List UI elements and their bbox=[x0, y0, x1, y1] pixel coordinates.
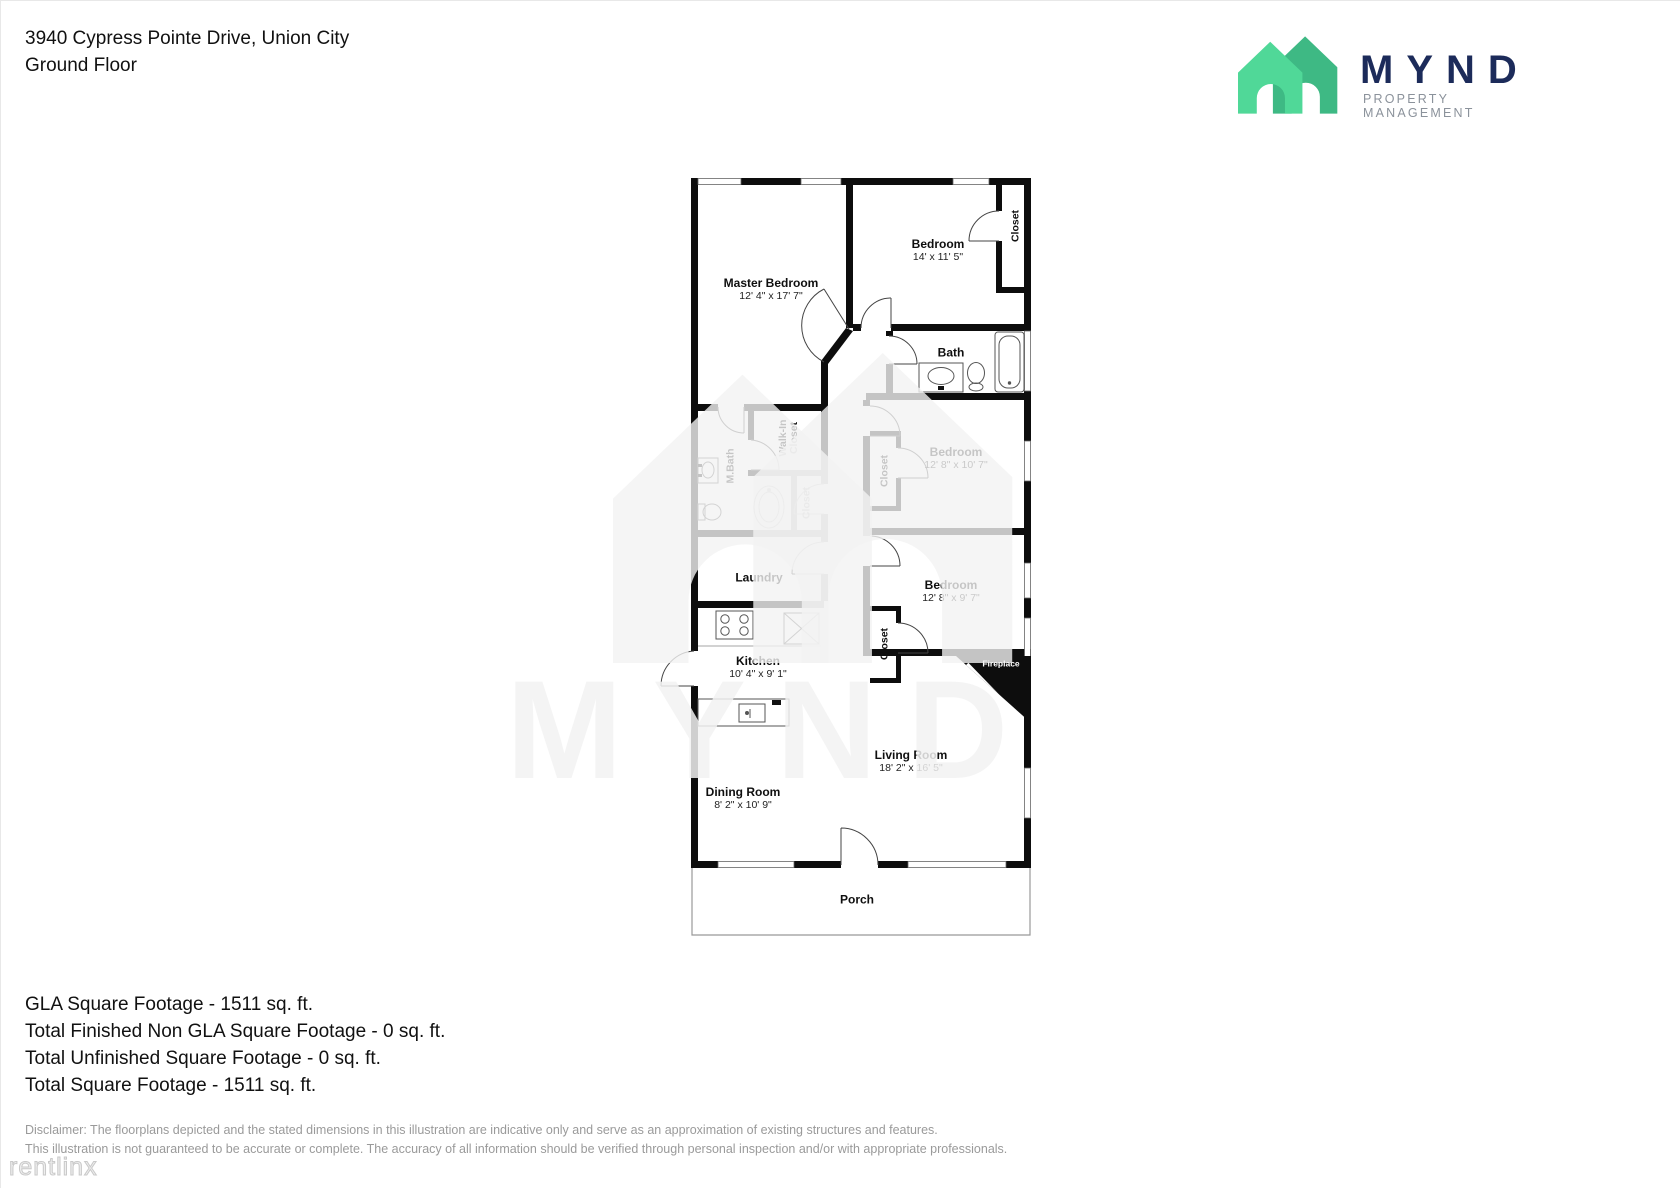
summary-line: Total Unfinished Square Footage - 0 sq. … bbox=[25, 1045, 445, 1072]
mynd-houses-icon bbox=[1238, 36, 1340, 114]
disclaimer-line: Disclaimer: The floorplans depicted and … bbox=[25, 1121, 1007, 1140]
square-footage-summary: GLA Square Footage - 1511 sq. ft. Total … bbox=[25, 991, 445, 1099]
floor-plan-svg bbox=[651, 178, 1031, 936]
room-label-kitchen: Kitchen 10' 4" x 9' 1" bbox=[729, 655, 787, 681]
disclaimer-line: This illustration is not guaranteed to b… bbox=[25, 1140, 1007, 1159]
room-label-closet-top: Closet bbox=[1010, 210, 1023, 242]
room-label-bedroom-mid-closet: Closet bbox=[879, 455, 892, 487]
room-label-porch: Porch bbox=[840, 894, 874, 907]
room-label-laundry: Laundry bbox=[735, 572, 782, 585]
room-dims: 12' 8" x 9' 7" bbox=[922, 592, 980, 605]
floor-label: Ground Floor bbox=[25, 52, 349, 79]
room-dims: 10' 4" x 9' 1" bbox=[729, 668, 787, 681]
room-label-dining-room: Dining Room 8' 2" x 10' 9" bbox=[706, 786, 781, 812]
summary-line: Total Finished Non GLA Square Footage - … bbox=[25, 1018, 445, 1045]
room-label-bedroom-low: Bedroom 12' 8" x 9' 7" bbox=[922, 579, 980, 605]
room-dims: 12' 8" x 10' 7" bbox=[924, 459, 987, 472]
room-dims: 12' 4" x 17' 7" bbox=[724, 290, 819, 303]
room-dims: 18' 2" x 16' 5" bbox=[875, 762, 948, 775]
floor-plan: Master Bedroom 12' 4" x 17' 7" Bedroom 1… bbox=[651, 178, 1031, 936]
mynd-logo: MYND PROPERTY MANAGEMENT bbox=[1238, 34, 1548, 114]
fireplace-label: Fireplace bbox=[982, 658, 1019, 671]
header: 3940 Cypress Pointe Drive, Union City Gr… bbox=[25, 25, 349, 79]
room-label-living-room: Living Room 18' 2" x 16' 5" bbox=[875, 749, 948, 775]
room-label-walk-in-closet: Walk-In Closet bbox=[778, 420, 800, 457]
rentlinx-watermark: rentlinx bbox=[9, 1153, 98, 1182]
room-label-bedroom-mid: Bedroom 12' 8" x 10' 7" bbox=[924, 446, 987, 472]
doors bbox=[661, 211, 999, 865]
summary-line: Total Square Footage - 1511 sq. ft. bbox=[25, 1072, 445, 1099]
brand-tagline: PROPERTY MANAGEMENT bbox=[1363, 92, 1548, 120]
room-label-bedroom-top: Bedroom 14' x 11' 5" bbox=[912, 238, 965, 264]
floorplan-page: 3940 Cypress Pointe Drive, Union City Gr… bbox=[0, 0, 1680, 1188]
brand-name: MYND bbox=[1360, 48, 1530, 93]
room-dims: 8' 2" x 10' 9" bbox=[706, 799, 781, 812]
room-dims: 14' x 11' 5" bbox=[912, 251, 965, 264]
room-label-bath: Bath bbox=[938, 347, 965, 360]
room-label-hall-closet: Closet bbox=[801, 487, 814, 519]
summary-line: GLA Square Footage - 1511 sq. ft. bbox=[25, 991, 445, 1018]
room-label-master-bedroom: Master Bedroom 12' 4" x 17' 7" bbox=[724, 277, 819, 303]
disclaimer: Disclaimer: The floorplans depicted and … bbox=[25, 1121, 1007, 1158]
room-label-m-bath: M.Bath bbox=[725, 449, 738, 484]
address-line: 3940 Cypress Pointe Drive, Union City bbox=[25, 25, 349, 52]
room-label-bedroom-low-closet: Closet bbox=[879, 628, 892, 660]
